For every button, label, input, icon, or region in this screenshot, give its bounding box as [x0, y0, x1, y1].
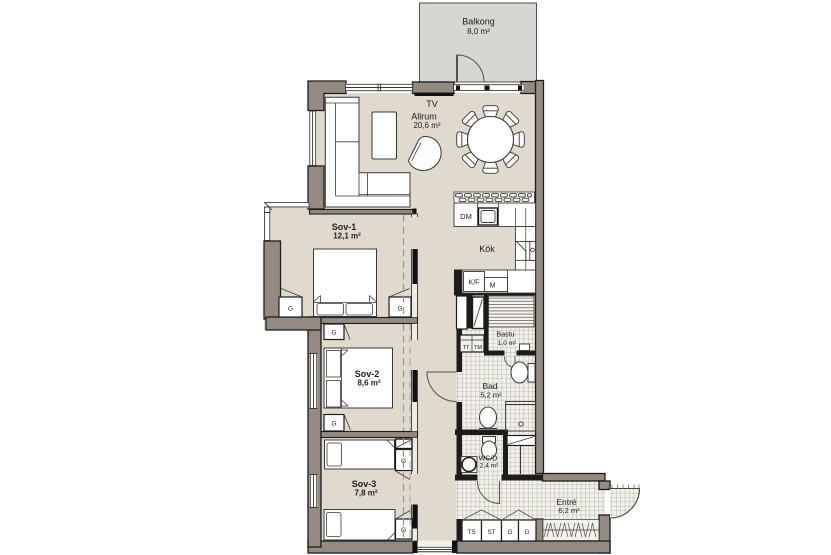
svg-text:M: M — [490, 283, 496, 290]
svg-text:Sov-2: Sov-2 — [355, 369, 380, 379]
svg-text:8,6 m²: 8,6 m² — [357, 379, 380, 388]
svg-text:TV: TV — [426, 99, 438, 109]
svg-text:TM: TM — [474, 345, 482, 351]
svg-text:DM: DM — [460, 212, 472, 221]
svg-text:Bad: Bad — [482, 381, 497, 391]
svg-text:Balkong: Balkong — [462, 17, 495, 27]
svg-text:7,8 m²: 7,8 m² — [354, 489, 377, 498]
svg-text:TT: TT — [463, 345, 470, 351]
svg-text:G: G — [331, 421, 336, 428]
svg-text:G: G — [507, 529, 512, 536]
svg-text:ST: ST — [487, 529, 495, 536]
svg-text:8,0 m²: 8,0 m² — [467, 27, 490, 36]
svg-text:G: G — [524, 529, 529, 536]
svg-text:Sov-1: Sov-1 — [332, 222, 357, 232]
svg-text:20,6 m²: 20,6 m² — [413, 121, 440, 130]
svg-text:TS: TS — [467, 529, 476, 536]
svg-text:6,2 m²: 6,2 m² — [558, 506, 580, 515]
svg-text:Kök: Kök — [479, 244, 495, 254]
svg-text:5,2 m²: 5,2 m² — [480, 391, 502, 400]
svg-text:12,1 m²: 12,1 m² — [333, 232, 361, 241]
svg-text:Sov-3: Sov-3 — [352, 479, 377, 489]
svg-text:WC/D: WC/D — [479, 456, 498, 463]
svg-text:1,0 m²: 1,0 m² — [498, 340, 517, 347]
svg-text:2,4 m²: 2,4 m² — [480, 463, 499, 470]
svg-text:G: G — [331, 330, 336, 337]
svg-text:G: G — [288, 306, 293, 313]
svg-text:Allrum: Allrum — [411, 112, 437, 122]
svg-text:K/F: K/F — [469, 280, 480, 287]
svg-text:Bastu: Bastu — [497, 332, 515, 339]
svg-text:G: G — [397, 306, 402, 313]
